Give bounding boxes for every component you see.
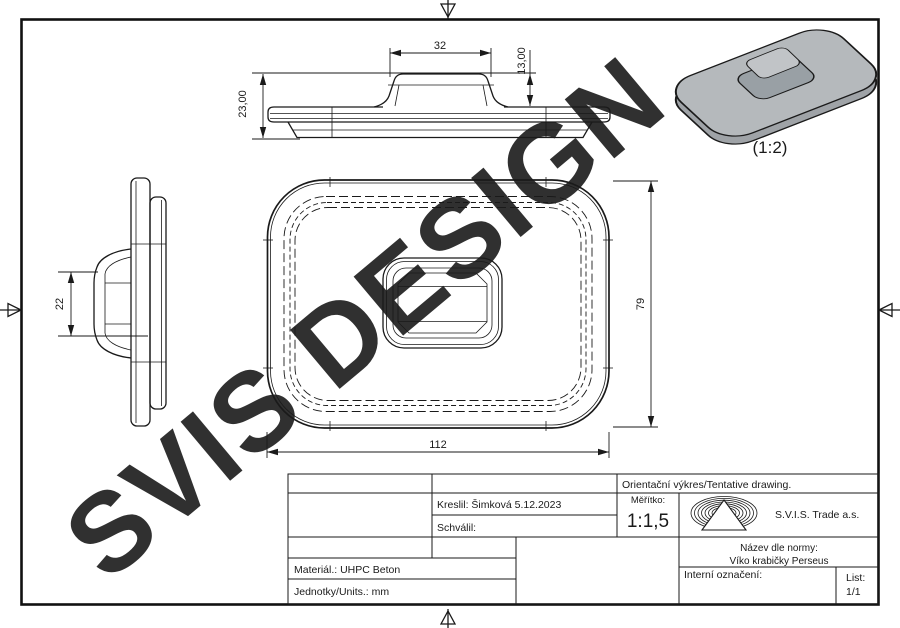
material-field: Materiál.: UHPC Beton (294, 564, 400, 576)
drawing-sheet: SVIS DESIGN 32 13,00 23,00 (0, 0, 900, 628)
iso-scale-label: (1:2) (753, 138, 788, 157)
company-name: S.V.I.S. Trade a.s. (775, 509, 859, 521)
list-label: List: (846, 572, 865, 584)
company-logo (691, 497, 757, 531)
dim-22: 22 (54, 298, 66, 310)
nazev-label: Název dle normy: (740, 543, 818, 554)
center-mark-top (441, 0, 455, 19)
dim-13: 13,00 (516, 47, 528, 75)
dim-112: 112 (429, 439, 447, 451)
jednotky-field: Jednotky/Units.: mm (294, 586, 389, 598)
dim-79: 79 (635, 298, 647, 310)
center-mark-right (879, 304, 900, 317)
center-mark-bottom (441, 609, 455, 628)
schvalil-field: Schválil: (437, 522, 476, 534)
interni-field: Interní označení: (684, 569, 762, 581)
tentative-drawing-label: Orientační výkres/Tentative drawing. (622, 479, 791, 491)
dimension-plan-height: 79 (613, 181, 658, 427)
meritko-label: Měřítko: (631, 495, 665, 506)
dimension-side-bump: 22 (54, 272, 148, 336)
list-value: 1/1 (846, 586, 861, 598)
dim-23: 23,00 (237, 90, 249, 118)
title-block: Orientační výkres/Tentative drawing. Kre… (288, 474, 879, 604)
iso-view: (1:2) (664, 23, 889, 157)
center-mark-left (0, 304, 21, 317)
nazev-value: Víko krabičky Perseus (730, 556, 829, 567)
side-view (94, 178, 166, 426)
kreslil-field: Kreslil: Šimková 5.12.2023 (437, 498, 561, 511)
meritko-value: 1:1,5 (627, 511, 669, 532)
dim-32: 32 (434, 40, 446, 52)
dimension-top-width: 32 (390, 40, 491, 77)
